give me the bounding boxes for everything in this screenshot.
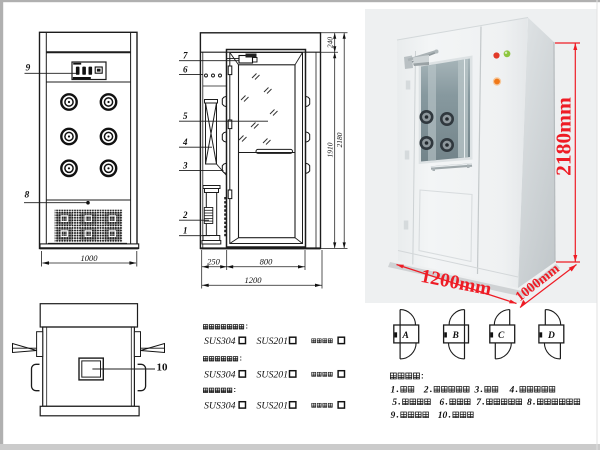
svg-text::: :: [421, 371, 424, 380]
svg-text:240: 240: [325, 37, 334, 49]
svg-text:800: 800: [260, 256, 274, 266]
svg-text::: :: [234, 385, 237, 394]
svg-text:1910: 1910: [325, 142, 334, 157]
svg-text:9: 9: [26, 64, 31, 74]
svg-text:1: 1: [183, 225, 188, 235]
svg-text::: :: [240, 354, 243, 363]
svg-text:5: 5: [392, 398, 397, 408]
svg-text:4: 4: [182, 137, 188, 147]
svg-text:1: 1: [391, 385, 396, 395]
svg-text:D: D: [547, 331, 555, 341]
svg-text:2180mm: 2180mm: [552, 97, 576, 176]
svg-text:250: 250: [207, 256, 221, 266]
svg-text:C: C: [498, 331, 505, 341]
svg-text:10: 10: [157, 362, 169, 374]
svg-text:8: 8: [25, 191, 30, 201]
svg-text:9: 9: [391, 411, 396, 421]
svg-text:2: 2: [423, 385, 429, 395]
svg-text:2: 2: [182, 210, 188, 220]
svg-text:8: 8: [527, 398, 532, 408]
svg-text:6: 6: [183, 64, 188, 74]
svg-text:SUS201: SUS201: [257, 336, 289, 347]
svg-text:7: 7: [183, 50, 188, 60]
svg-text:1200: 1200: [245, 275, 263, 285]
svg-text:SUS304: SUS304: [204, 400, 236, 411]
svg-text:2180: 2180: [335, 132, 344, 147]
svg-text:1000: 1000: [81, 253, 99, 263]
svg-text:SUS304: SUS304: [204, 336, 236, 347]
svg-text:6: 6: [440, 398, 445, 408]
svg-text:3: 3: [182, 160, 188, 170]
svg-text::: :: [246, 322, 249, 331]
svg-text:B: B: [452, 331, 459, 341]
svg-text:A: A: [402, 331, 409, 341]
svg-text:SUS304: SUS304: [204, 369, 236, 380]
svg-text:5: 5: [183, 111, 188, 121]
svg-text:SUS201: SUS201: [257, 400, 289, 411]
svg-text:10: 10: [438, 411, 448, 421]
svg-text:SUS201: SUS201: [257, 369, 289, 380]
svg-text:3: 3: [474, 385, 480, 395]
svg-text:4: 4: [509, 385, 515, 395]
